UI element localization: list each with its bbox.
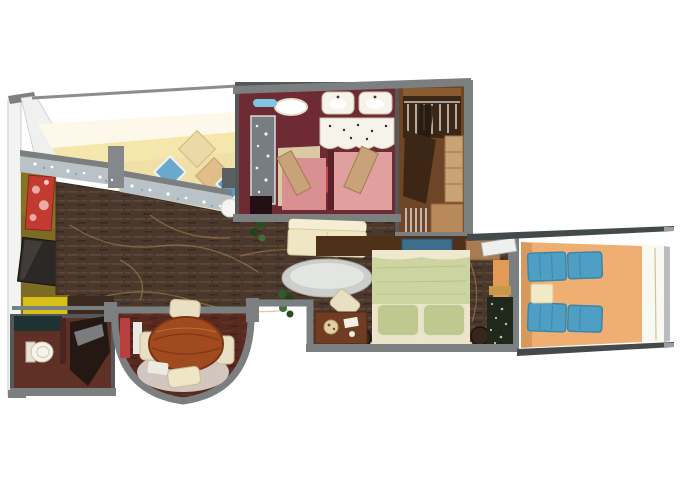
bay-red-wall [120, 318, 130, 358]
closet-top-shelf [403, 88, 461, 96]
wall-cap [246, 298, 259, 322]
white-railing-deck [642, 244, 664, 342]
dark-counter [14, 316, 62, 331]
desk [315, 312, 367, 344]
lounge-chair [528, 251, 603, 282]
tray [324, 320, 338, 334]
master-bathroom [237, 84, 397, 220]
powder-room [10, 296, 116, 396]
toilet [26, 342, 53, 362]
powder-bottom-wall [10, 388, 116, 396]
rail-end-cap [664, 227, 674, 231]
tv-screen [402, 239, 452, 251]
coffee-table [282, 259, 372, 297]
bed [370, 250, 472, 350]
toilet-stalls [277, 146, 392, 210]
towel-bar [253, 99, 277, 107]
bedroom-bottom-wall [306, 344, 518, 352]
jacuzzi-tub [320, 118, 394, 149]
closet-bench [431, 204, 463, 234]
balcony-side-table [531, 284, 553, 303]
pillow [423, 304, 465, 336]
shelf-column [445, 136, 463, 202]
pillow [377, 304, 419, 336]
floor-plan-image [0, 0, 680, 486]
curtain [487, 297, 513, 347]
stall-divider [328, 150, 334, 210]
walk-in-closet [397, 84, 467, 236]
oval-ceiling-light [275, 99, 307, 115]
rail-end-cap [664, 343, 674, 347]
divider-wall [60, 318, 66, 364]
glass-shower [251, 116, 275, 204]
cup [349, 331, 355, 337]
door-glow [493, 260, 509, 302]
wall-step [108, 146, 124, 188]
suite-floor-plan [0, 0, 680, 486]
nightstand-round [471, 327, 489, 345]
wall-art [25, 175, 55, 231]
closet-right-wall [464, 80, 473, 238]
lounge-chair [528, 303, 603, 334]
wall-cap [104, 302, 117, 322]
door-sill [489, 286, 511, 295]
dining-chair [167, 366, 201, 388]
duvet [372, 252, 470, 304]
railing-outer-edge [664, 246, 670, 342]
